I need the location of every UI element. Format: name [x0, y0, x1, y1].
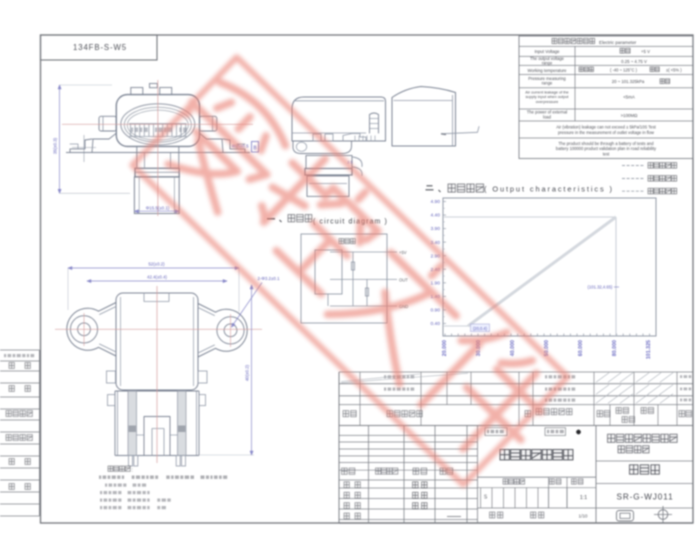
svg-text:OUT: OUT: [399, 277, 408, 282]
svg-text:overpressure: overpressure: [536, 99, 559, 104]
svg-text:40.000: 40.000: [510, 340, 516, 356]
svg-text:SR-G-WJ011: SR-G-WJ011: [616, 493, 673, 502]
svg-text:range: range: [542, 81, 553, 86]
svg-text:Input Voltage: Input Voltage: [534, 49, 560, 54]
svg-text:>100MΩ: >100MΩ: [621, 113, 639, 118]
svg-text:Electric parameter: Electric parameter: [599, 40, 637, 45]
svg-text:<5mA: <5mA: [623, 95, 635, 100]
svg-text:42.4(±0.4): 42.4(±0.4): [147, 275, 168, 280]
svg-text:Air (vibration) leakage can no: Air (vibration) leakage can not exceed ±…: [556, 125, 656, 130]
svg-text:60.000: 60.000: [578, 340, 584, 356]
svg-text:20.000: 20.000: [442, 340, 448, 356]
svg-text:S: S: [484, 495, 488, 501]
svg-text:battery 100000 product validat: battery 100000 product validation plan i…: [556, 146, 657, 151]
svg-text:( circuit diagram ): ( circuit diagram ): [313, 219, 388, 226]
svg-text:35(±0.3): 35(±0.3): [53, 137, 58, 154]
svg-text:Working temperature: Working temperature: [527, 68, 567, 73]
svg-text:1:1: 1:1: [580, 495, 587, 501]
svg-text:1/10: 1/10: [579, 514, 588, 519]
svg-text:20 ~ 101.325kPa: 20 ~ 101.325kPa: [612, 79, 645, 84]
svg-text:load: load: [543, 114, 552, 119]
svg-text:Φ15.5(±0.1): Φ15.5(±0.1): [146, 205, 170, 210]
svg-text:( Output characteristics ): ( Output characteristics ): [484, 185, 614, 194]
svg-text:test: test: [603, 151, 610, 156]
svg-text:4.90: 4.90: [430, 199, 440, 205]
svg-text:(20,0.4): (20,0.4): [473, 326, 488, 331]
svg-text:( -40 ~ 125°C ): ( -40 ~ 125°C ): [610, 68, 638, 73]
svg-text:0.25 ~ 4.75 V: 0.25 ~ 4.75 V: [621, 59, 647, 64]
svg-text:The product should be through: The product should be through a battery …: [558, 141, 654, 146]
svg-text:range: range: [542, 60, 553, 65]
svg-text:1.90: 1.90: [430, 280, 440, 286]
svg-text:80.000: 80.000: [612, 340, 618, 356]
svg-text:B: B: [253, 145, 257, 151]
svg-text:3.90: 3.90: [430, 226, 440, 232]
svg-text:pressure in the measurement of: pressure in the measurement of outlet vo…: [558, 130, 654, 135]
svg-text:0.40: 0.40: [430, 321, 440, 327]
svg-text:134FB-S-W5: 134FB-S-W5: [73, 43, 127, 52]
svg-text:±( <5% ): ±( <5% ): [666, 68, 682, 73]
svg-text:+5 V: +5 V: [641, 49, 650, 54]
svg-text:0.90: 0.90: [430, 308, 440, 314]
svg-text:40(±0.2): 40(±0.2): [245, 364, 250, 381]
svg-text:101.325: 101.325: [646, 340, 652, 359]
svg-text:(101.32,4.65): (101.32,4.65): [588, 285, 614, 290]
svg-text:52(±0.2): 52(±0.2): [148, 262, 165, 267]
svg-text:2-Φ3.2±0.1: 2-Φ3.2±0.1: [257, 276, 280, 281]
svg-text:4.40: 4.40: [430, 213, 440, 219]
svg-text:+5V: +5V: [399, 250, 407, 255]
svg-text::: :: [132, 468, 133, 474]
